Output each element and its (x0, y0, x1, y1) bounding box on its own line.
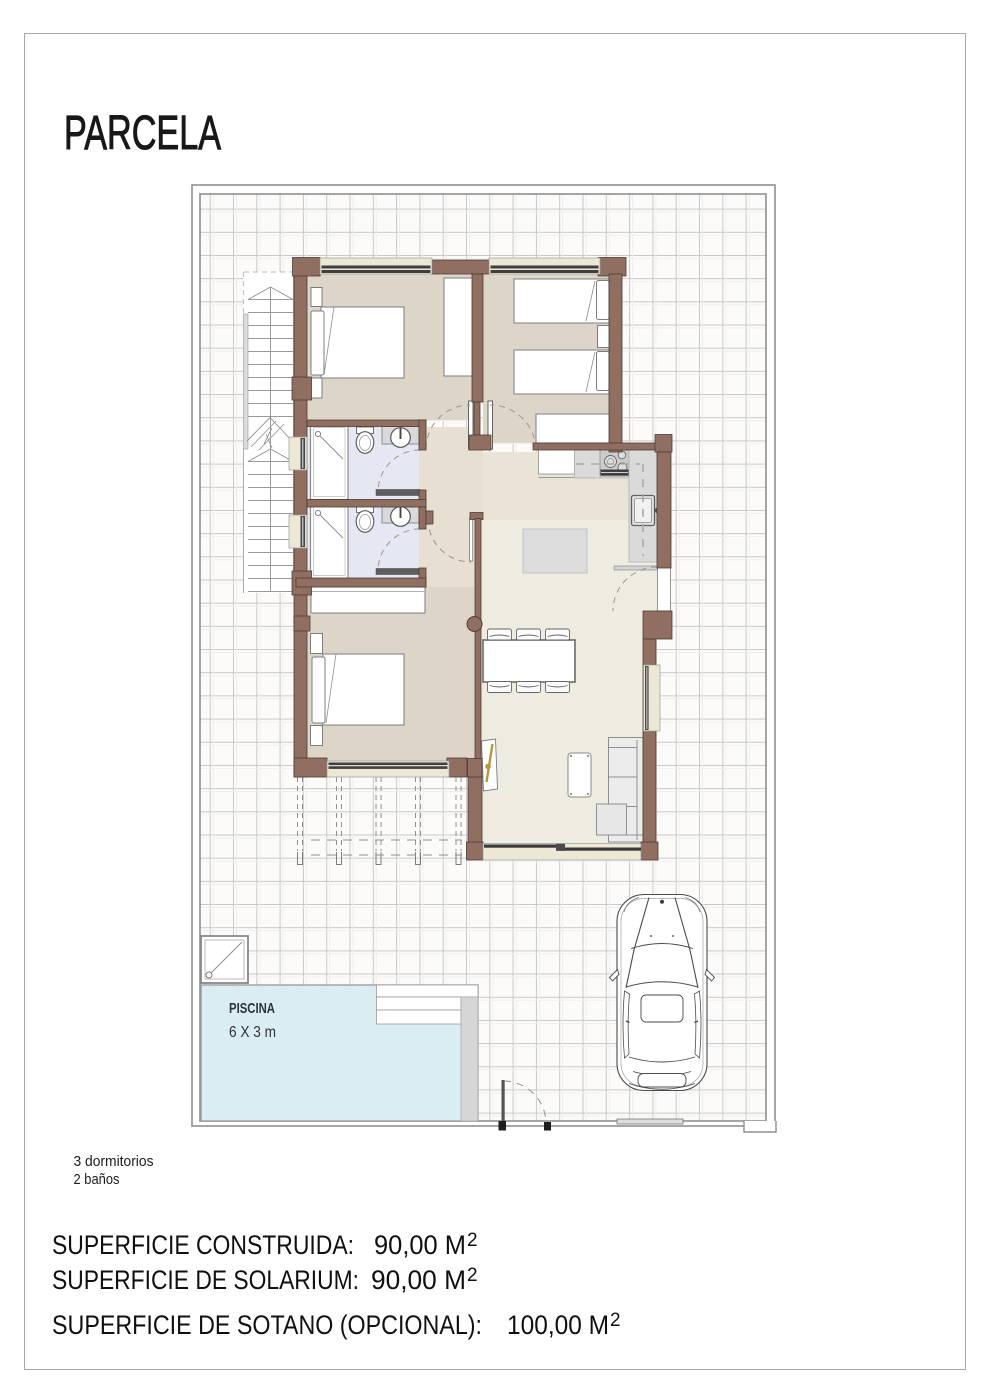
svg-text:90,00 M: 90,00 M (374, 1230, 466, 1260)
svg-text:2: 2 (467, 1265, 478, 1286)
svg-text:PISCINA: PISCINA (229, 1000, 275, 1017)
svg-text:6 X 3 m: 6 X 3 m (229, 1024, 276, 1041)
svg-text:90,00 M: 90,00 M (371, 1265, 466, 1295)
svg-text:3 dormitorios: 3 dormitorios (74, 1154, 154, 1170)
svg-text:PARCELA: PARCELA (64, 107, 221, 160)
svg-text:SUPERFICIE DE SOTANO (OPCIONAL: SUPERFICIE DE SOTANO (OPCIONAL): (52, 1310, 482, 1340)
svg-text:100,00 M: 100,00 M (507, 1310, 609, 1340)
svg-text:2 baños: 2 baños (74, 1172, 120, 1188)
svg-text:SUPERFICIE CONSTRUIDA:: SUPERFICIE CONSTRUIDA: (52, 1230, 354, 1260)
svg-text:SUPERFICIE DE SOLARIUM:: SUPERFICIE DE SOLARIUM: (52, 1265, 359, 1295)
svg-text:2: 2 (610, 1310, 621, 1331)
svg-text:2: 2 (467, 1230, 478, 1251)
